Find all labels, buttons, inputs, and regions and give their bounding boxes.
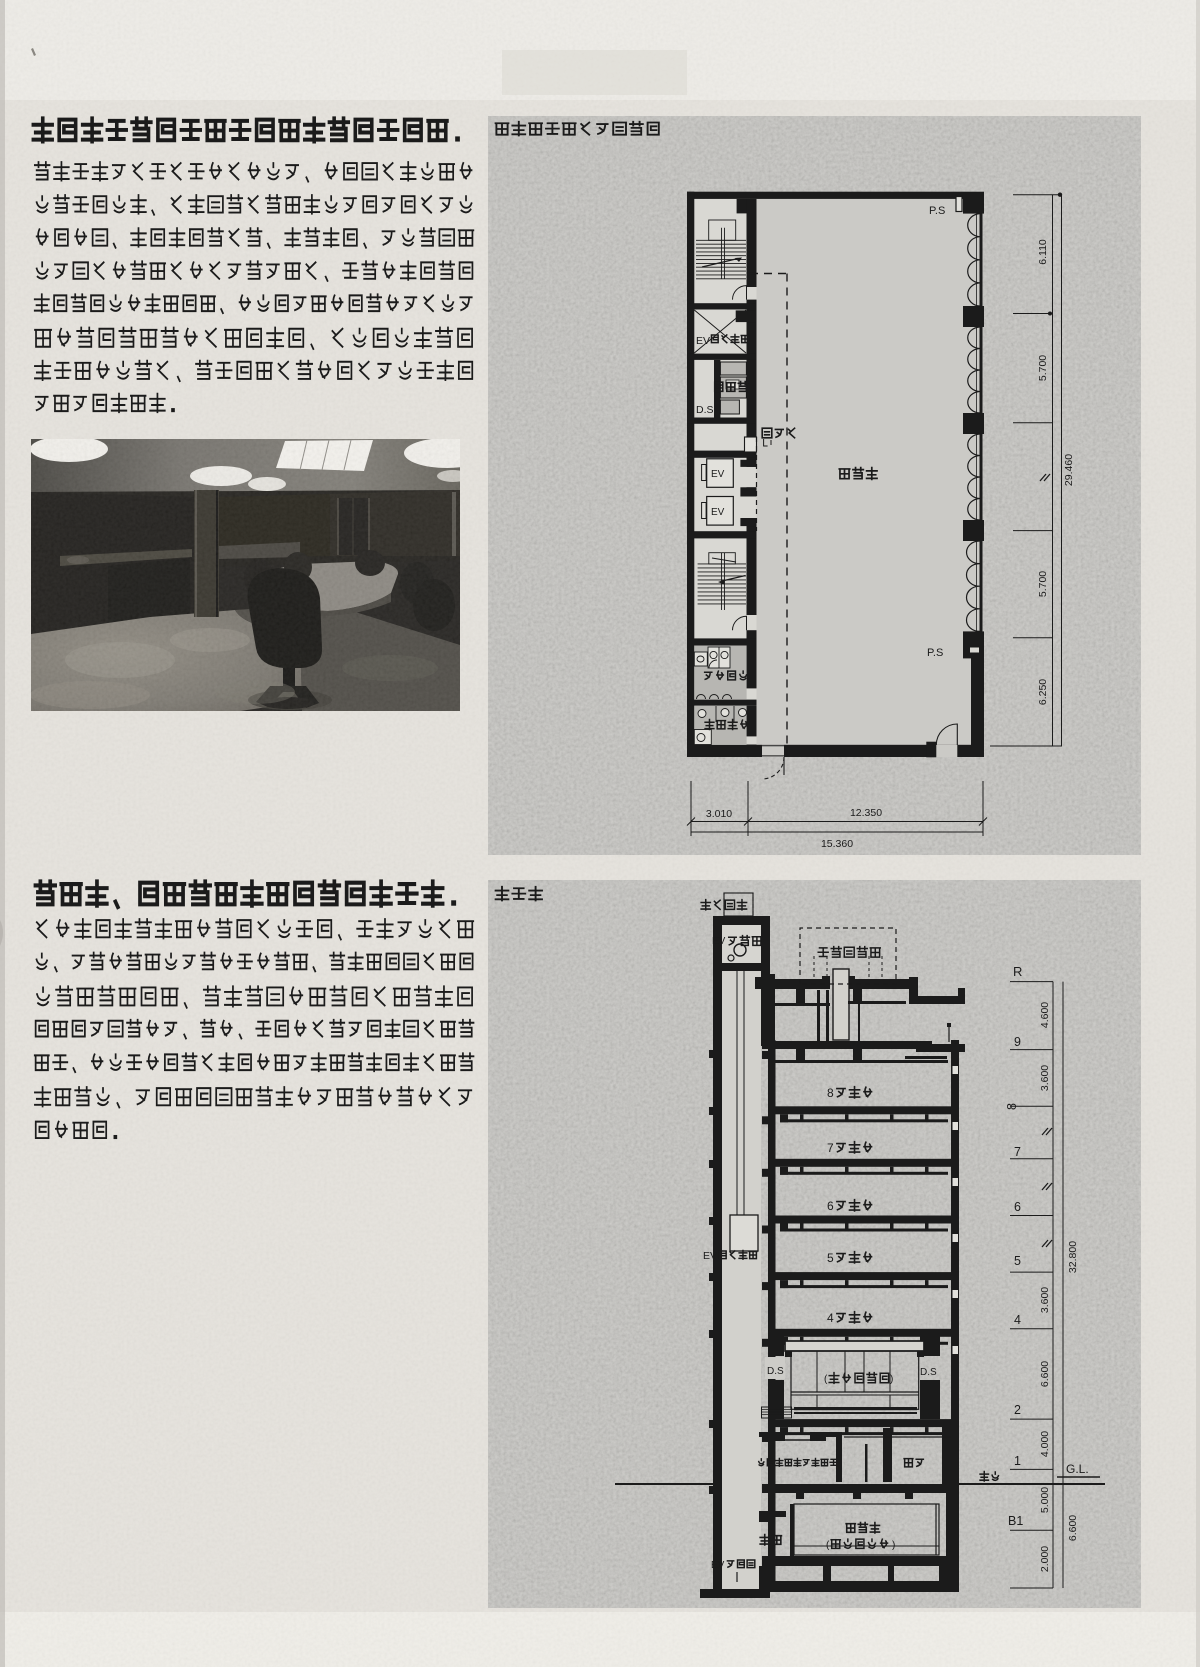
svg-text:5.700: 5.700 [1037,355,1049,381]
svg-text:6.110: 6.110 [1037,239,1049,265]
svg-text:6.250: 6.250 [1037,679,1049,705]
svg-text:EV: EV [711,507,725,518]
svg-text:G.L.: G.L. [1066,1462,1089,1476]
svg-text:R: R [1013,964,1022,979]
svg-text:4: 4 [827,1311,834,1325]
svg-text:D.S: D.S [696,404,714,416]
svg-text:1: 1 [1014,1454,1021,1468]
svg-text:7: 7 [1014,1145,1021,1159]
svg-text:32.800: 32.800 [1067,1241,1079,1273]
svg-text:EV: EV [696,335,710,347]
svg-text:4: 4 [1014,1313,1021,1327]
svg-text:): ) [892,1540,895,1551]
svg-text:EV: EV [703,1250,717,1262]
svg-text:3.600: 3.600 [1039,1065,1051,1091]
svg-text:8: 8 [827,1086,834,1100]
svg-text:B1: B1 [1008,1514,1023,1528]
svg-text:4.600: 4.600 [1039,1002,1051,1028]
svg-text:3.600: 3.600 [1039,1287,1051,1313]
svg-text:5.700: 5.700 [1037,571,1049,597]
svg-text:EV: EV [711,469,725,480]
svg-text:2: 2 [1014,1403,1021,1417]
svg-text:5: 5 [1014,1254,1021,1268]
svg-text:29.460: 29.460 [1063,454,1075,486]
svg-text:12.350: 12.350 [850,807,882,819]
svg-text:P.S: P.S [927,647,943,659]
svg-text:D.S: D.S [920,1367,937,1378]
svg-text:9: 9 [1014,1035,1021,1049]
svg-text:): ) [890,1374,893,1385]
svg-text:D.S: D.S [767,1366,784,1377]
svg-text:15.360: 15.360 [821,838,853,850]
svg-text:EV: EV [711,1560,725,1571]
svg-text:6.600: 6.600 [1067,1515,1079,1541]
svg-text:6: 6 [1014,1200,1021,1214]
svg-text:3.010: 3.010 [706,808,732,820]
svg-text:8: 8 [1005,1103,1019,1110]
svg-text:6: 6 [827,1199,834,1213]
svg-text:5: 5 [827,1251,834,1265]
svg-text:4.000: 4.000 [1039,1431,1051,1457]
svg-text:7: 7 [827,1141,834,1155]
svg-text:5.000: 5.000 [1039,1487,1051,1513]
svg-text:P.S: P.S [929,205,945,217]
svg-text:6.600: 6.600 [1039,1361,1051,1387]
svg-text:EV: EV [712,936,726,947]
svg-text:2.000: 2.000 [1039,1546,1051,1572]
